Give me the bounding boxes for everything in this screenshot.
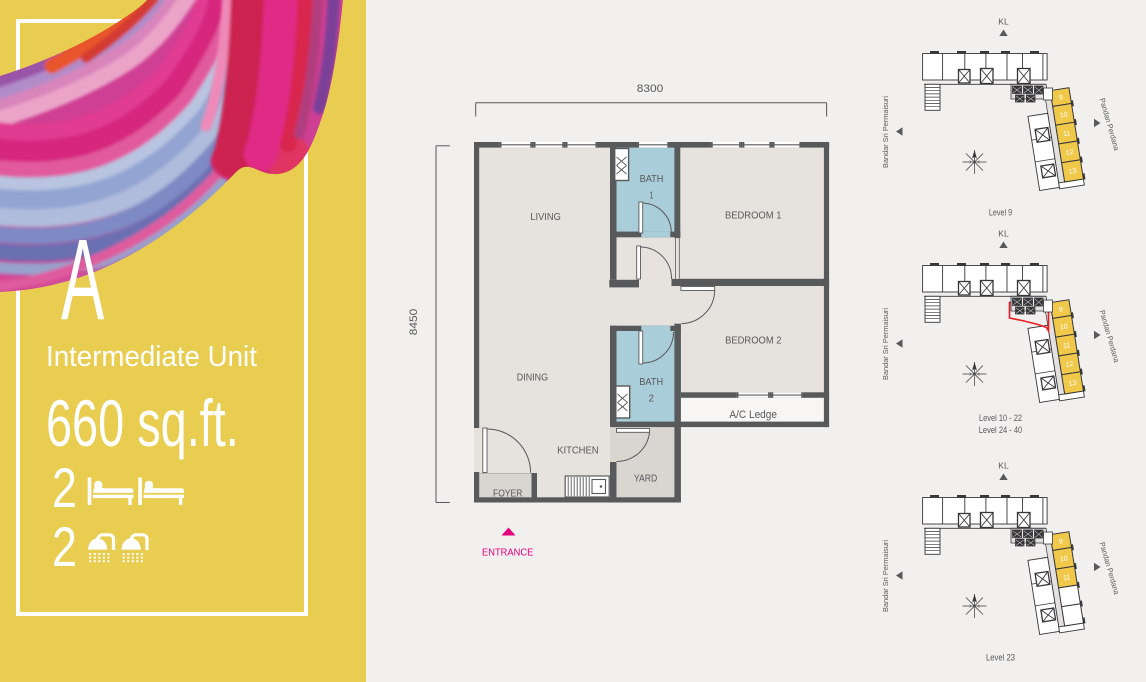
- svg-text:10: 10: [1059, 555, 1068, 563]
- svg-text:10: 10: [1059, 111, 1068, 119]
- svg-text:BEDROOM 1: BEDROOM 1: [725, 211, 782, 222]
- svg-text:Level 9: Level 9: [989, 208, 1012, 218]
- svg-text:Level 10 - 22: Level 10 - 22: [979, 413, 1022, 423]
- svg-text:FOYER: FOYER: [493, 489, 522, 500]
- svg-text:11: 11: [1063, 342, 1071, 350]
- svg-text:Bandar Sri Permaisuri: Bandar Sri Permaisuri: [881, 308, 890, 380]
- svg-text:YARD: YARD: [634, 474, 657, 485]
- svg-text:BATH: BATH: [640, 174, 664, 185]
- svg-text:ENTRANCE: ENTRANCE: [482, 548, 533, 559]
- svg-text:12: 12: [1065, 149, 1074, 157]
- svg-text:10: 10: [1059, 323, 1068, 331]
- svg-text:Bandar Sri Permaisuri: Bandar Sri Permaisuri: [881, 96, 890, 168]
- svg-text:12: 12: [1065, 361, 1074, 369]
- svg-text:13: 13: [1068, 380, 1077, 388]
- svg-text:KL: KL: [998, 229, 1009, 239]
- svg-text:LIVING: LIVING: [530, 212, 560, 223]
- svg-text:Pandan Perdana: Pandan Perdana: [1098, 309, 1122, 364]
- svg-text:BEDROOM 2: BEDROOM 2: [725, 336, 782, 347]
- svg-text:11: 11: [1063, 130, 1071, 138]
- svg-text:13: 13: [1068, 168, 1077, 176]
- svg-text:Level 24 - 40: Level 24 - 40: [979, 425, 1023, 435]
- svg-text:DINING: DINING: [517, 373, 548, 384]
- svg-text:Level 23: Level 23: [986, 653, 1015, 663]
- svg-text:2: 2: [648, 394, 654, 405]
- svg-text:8300: 8300: [637, 83, 664, 95]
- svg-text:KL: KL: [998, 461, 1009, 471]
- svg-text:KITCHEN: KITCHEN: [557, 446, 599, 457]
- svg-text:8450: 8450: [408, 309, 420, 336]
- svg-text:11: 11: [1063, 574, 1071, 582]
- svg-text:KL: KL: [998, 17, 1009, 27]
- svg-text:Pandan Perdana: Pandan Perdana: [1098, 541, 1122, 596]
- svg-text:BATH: BATH: [639, 377, 663, 388]
- svg-text:1: 1: [650, 191, 654, 202]
- svg-text:A/C Ledge: A/C Ledge: [729, 409, 777, 421]
- svg-text:Pandan Perdana: Pandan Perdana: [1098, 97, 1122, 152]
- svg-text:Bandar Sri Permaisuri: Bandar Sri Permaisuri: [881, 540, 890, 612]
